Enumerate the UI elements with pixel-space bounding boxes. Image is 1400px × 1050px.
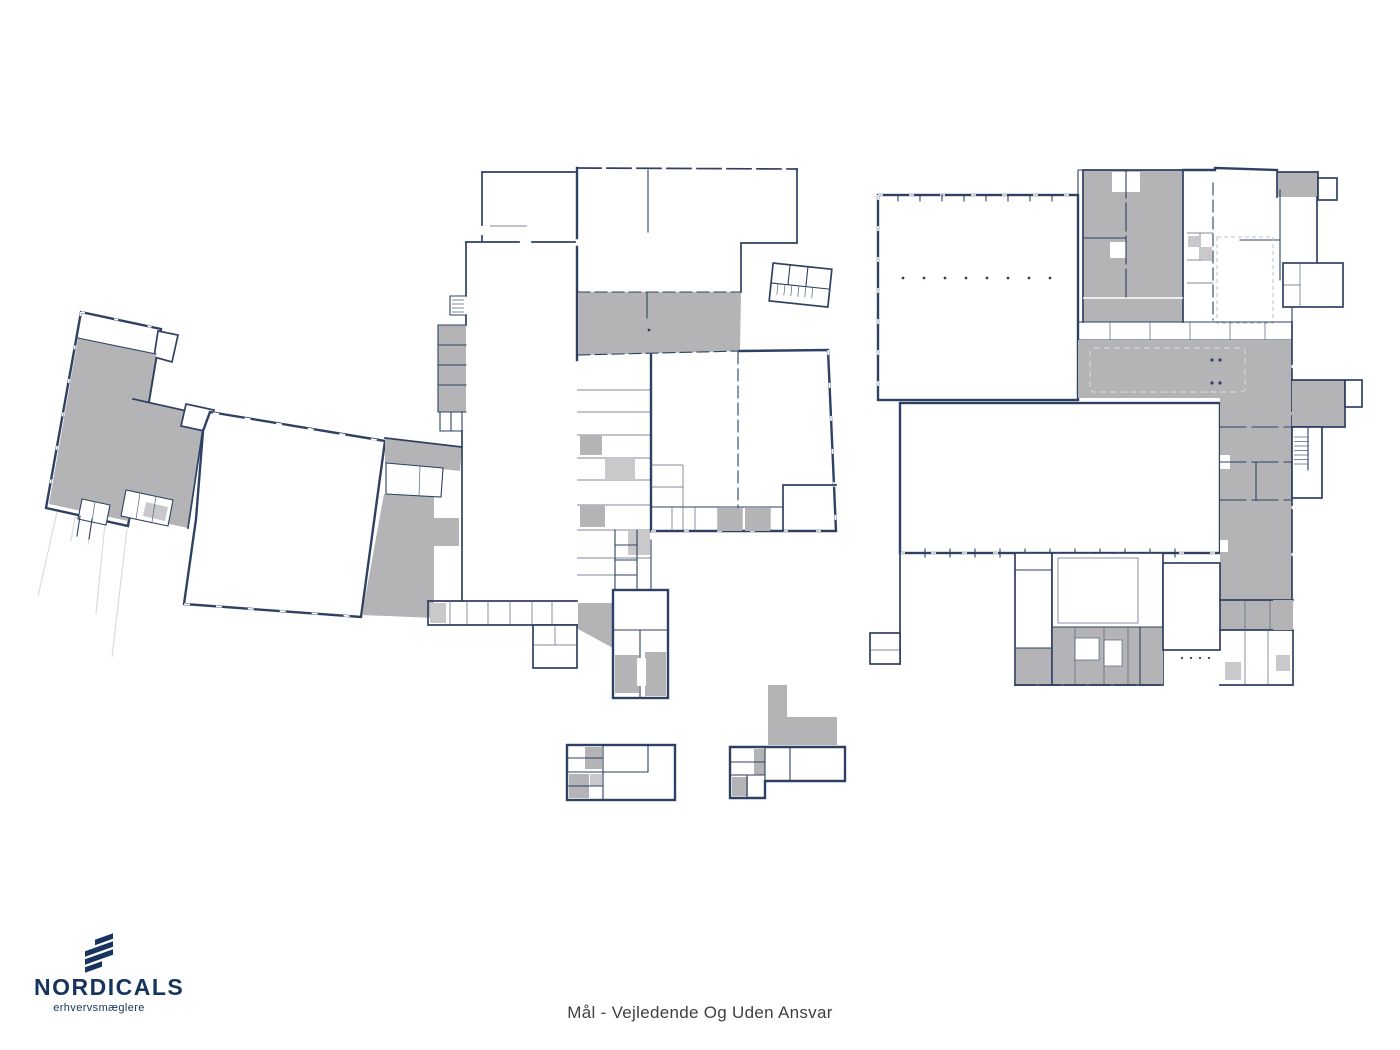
floorplan-page: NORDICALS erhvervsmæglere Mål - Vejleden… — [0, 0, 1400, 1050]
outbuilding-southwest-plan — [567, 745, 675, 800]
east-building-plan — [870, 168, 1362, 685]
west-building-plan — [38, 312, 462, 657]
outbuilding-south-plan — [730, 685, 845, 798]
floorplan-drawing — [0, 0, 1400, 1050]
logo-wordmark: NORDICALS — [34, 976, 164, 999]
disclaimer-caption: Mål - Vejledende Og Uden Ansvar — [0, 1003, 1400, 1023]
nordicals-logo: NORDICALS erhvervsmæglere — [34, 928, 164, 1014]
center-building-plan — [428, 168, 836, 698]
gray-annex-silhouette — [768, 685, 837, 745]
nordicals-logo-mark-icon — [82, 928, 116, 974]
door-swing-dots — [1181, 657, 1210, 659]
